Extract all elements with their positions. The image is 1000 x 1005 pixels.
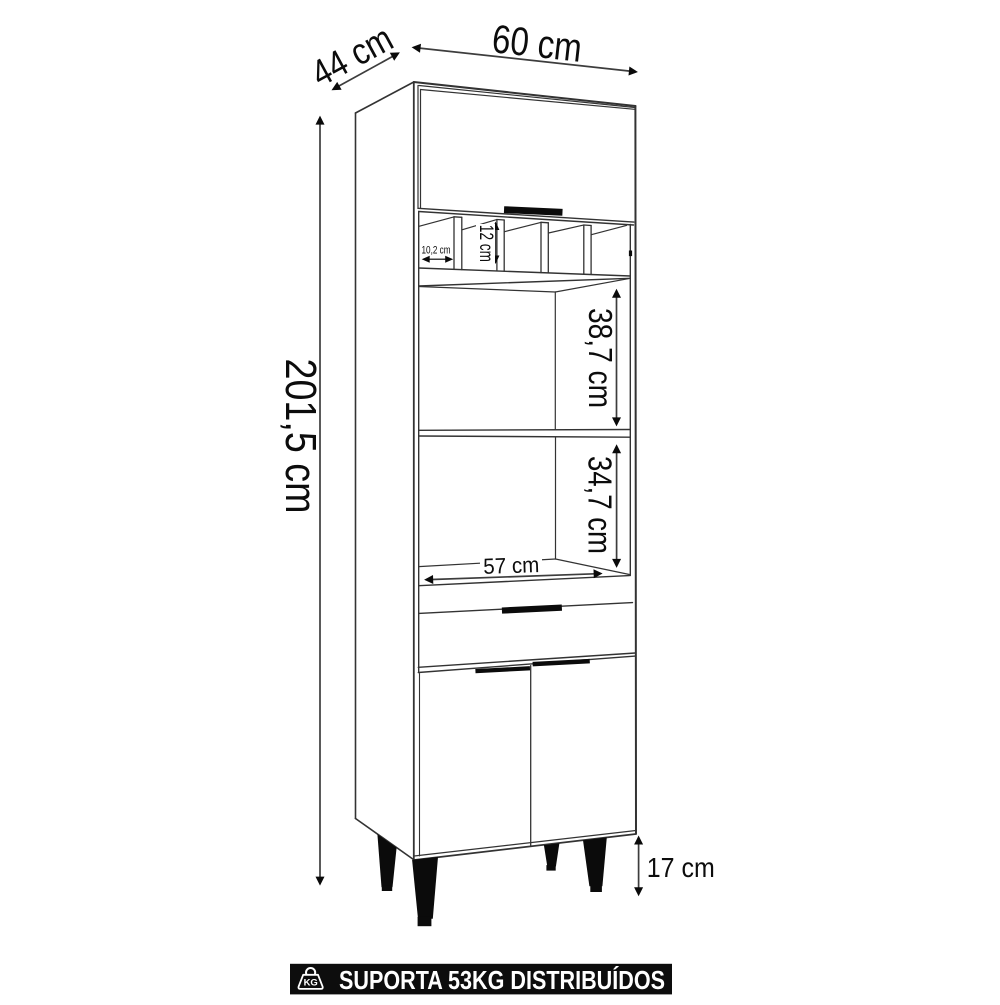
svg-text:17 cm: 17 cm	[647, 852, 715, 883]
svg-text:SUPORTA 53KG DISTRIBUÍDOS: SUPORTA 53KG DISTRIBUÍDOS	[339, 965, 665, 995]
svg-text:10,2 cm: 10,2 cm	[422, 244, 451, 256]
svg-text:34,7 cm: 34,7 cm	[582, 456, 619, 554]
svg-text:57 cm: 57 cm	[483, 552, 540, 579]
svg-text:201,5 cm: 201,5 cm	[276, 359, 325, 514]
svg-text:KG: KG	[304, 978, 318, 989]
svg-text:38,7 cm: 38,7 cm	[582, 308, 619, 408]
svg-text:12 cm: 12 cm	[475, 225, 496, 262]
